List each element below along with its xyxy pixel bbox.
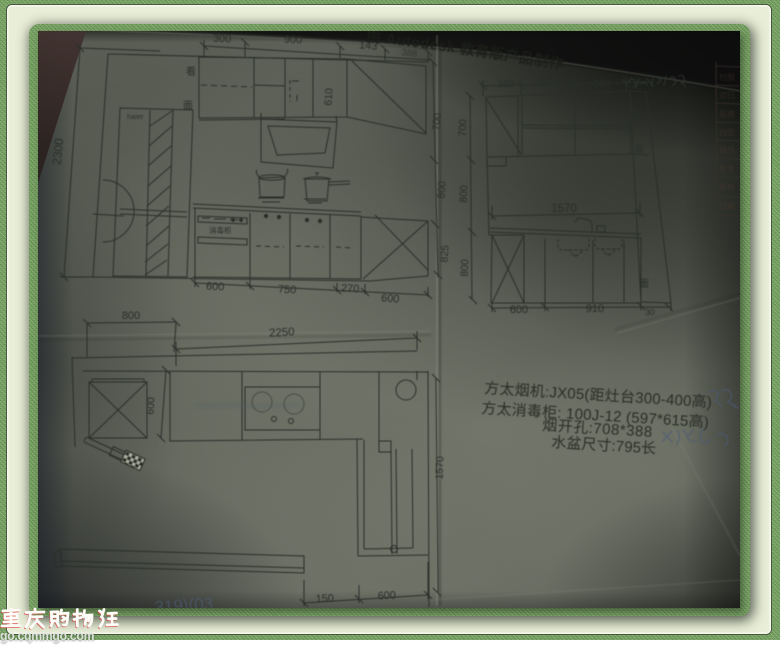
svg-text:面: 面 [634,144,644,155]
svg-text:haier: haier [127,112,144,121]
svg-text:签字: 签字 [719,164,735,174]
svg-text:600: 600 [206,281,225,294]
svg-text:30: 30 [645,307,655,317]
svg-text:面: 面 [639,279,649,290]
svg-text:看: 看 [186,65,196,78]
svg-text:边已: 边已 [719,90,735,100]
svg-text:1570: 1570 [434,456,447,480]
svg-text:600: 600 [381,292,400,305]
svg-text:2300: 2300 [50,137,67,165]
svg-text:600: 600 [145,397,158,415]
svg-text:900: 900 [284,34,303,47]
svg-text:消毒柜: 消毒柜 [209,225,232,235]
svg-text:580: 580 [593,79,610,91]
svg-text:800: 800 [435,180,448,198]
svg-text:300: 300 [213,33,232,46]
svg-text:825: 825 [438,244,451,262]
svg-text:700: 700 [430,112,443,130]
svg-text:700: 700 [457,119,470,137]
svg-text:610: 610 [323,88,336,106]
svg-text:600: 600 [377,590,396,603]
svg-text:388: 388 [401,47,418,60]
svg-text:750: 750 [278,284,297,297]
svg-text:580: 580 [537,77,554,89]
svg-text:面: 面 [183,101,193,112]
svg-text:看: 看 [631,107,641,120]
svg-text:日期: 日期 [719,202,735,211]
svg-text:800: 800 [459,259,472,277]
svg-text:2250: 2250 [269,326,295,339]
svg-text:付图: 付图 [719,72,735,82]
svg-text:层高: 层高 [719,109,735,119]
svg-text:389: 389 [497,79,514,91]
svg-text:1570: 1570 [551,203,577,215]
svg-text:白图: 白图 [719,127,735,137]
svg-text:270: 270 [341,283,360,296]
svg-text:800: 800 [458,185,471,203]
svg-text:910: 910 [586,303,605,315]
svg-text:审核: 审核 [719,182,735,192]
svg-text:现场: 现场 [719,146,735,155]
svg-text:150: 150 [315,593,334,606]
svg-text:143: 143 [359,39,378,53]
svg-text:319)(03: 319)(03 [154,594,214,608]
svg-text:600: 600 [510,304,529,316]
svg-text:800: 800 [122,310,140,322]
